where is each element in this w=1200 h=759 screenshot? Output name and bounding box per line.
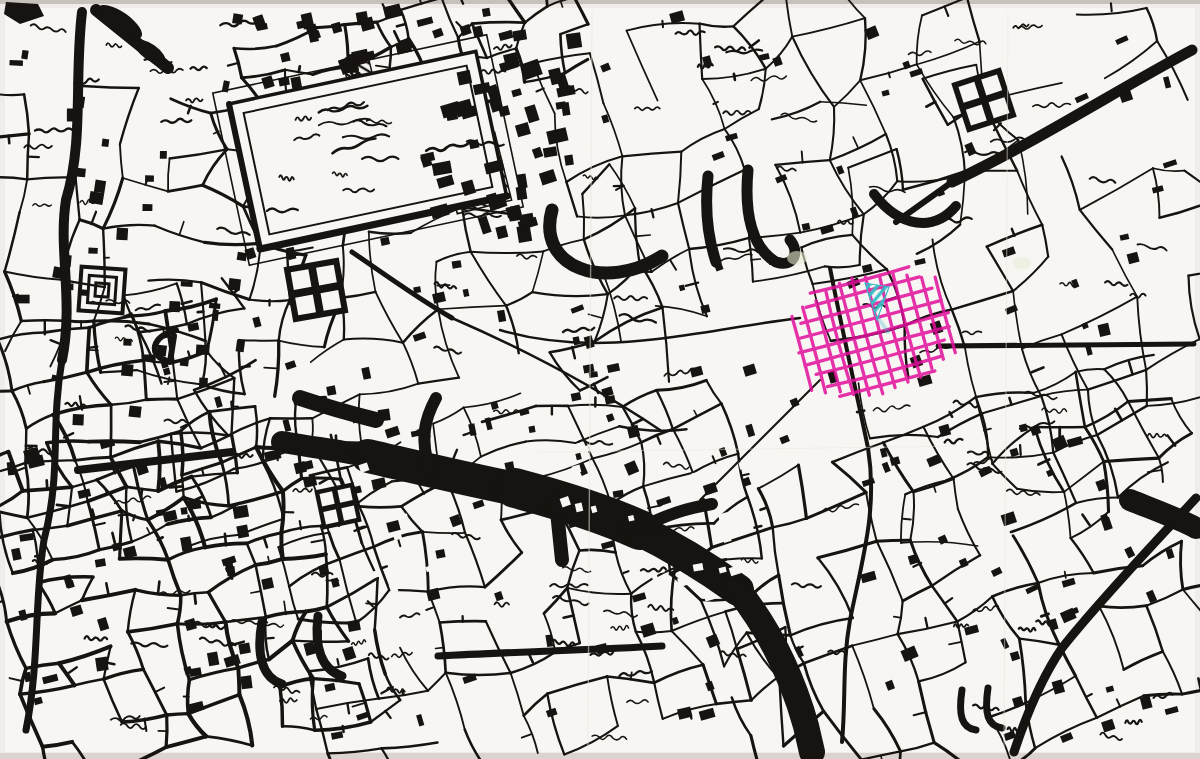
courtyard-block-a [284,258,349,323]
green-smudge-a [787,251,807,265]
courtyard-block-c [314,482,361,529]
road-right-horizontal [938,344,1194,346]
bazaar-offshoot-south [556,502,562,560]
green-smudge-b [1013,257,1031,269]
screenshot-root [0,0,1200,759]
scanned-city-map [0,0,1200,759]
scan-edge-top [0,0,1200,4]
scan-edge-bottom [0,753,1200,759]
